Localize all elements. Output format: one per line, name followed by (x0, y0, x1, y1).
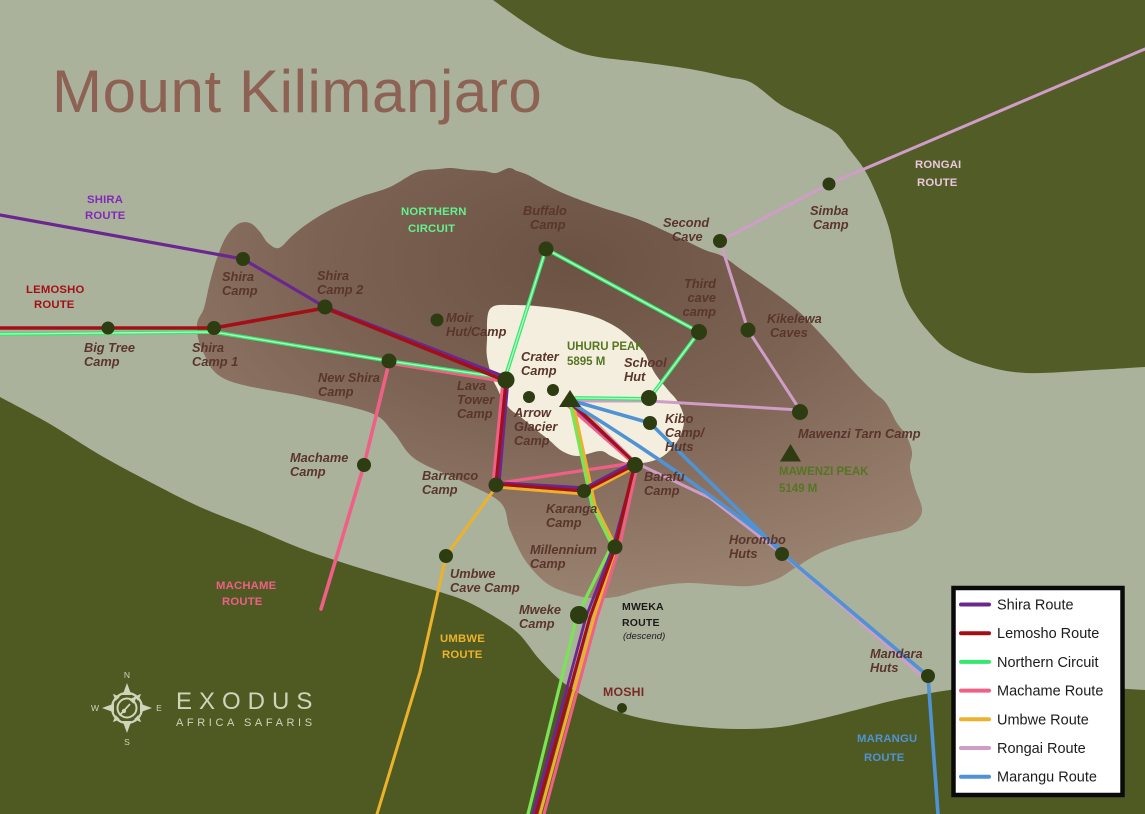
svg-text:(descend): (descend) (623, 631, 665, 642)
svg-text:Thirdcavecamp: Thirdcavecamp (683, 276, 718, 319)
svg-text:UMBWE: UMBWE (440, 633, 485, 645)
svg-text:MACHAME: MACHAME (216, 580, 277, 592)
svg-text:ROUTE: ROUTE (34, 299, 75, 311)
svg-text:CIRCUIT: CIRCUIT (408, 223, 455, 235)
svg-text:SHIRA: SHIRA (87, 194, 123, 206)
svg-text:UHURU PEAK: UHURU PEAK (567, 341, 644, 353)
svg-text:Lemosho Route: Lemosho Route (997, 626, 1099, 642)
svg-text:MOSHI: MOSHI (603, 685, 644, 699)
svg-text:SimbaCamp: SimbaCamp (810, 203, 849, 232)
svg-text:Machame Route: Machame Route (997, 684, 1103, 700)
svg-text:Rongai Route: Rongai Route (997, 741, 1086, 757)
svg-text:S: S (124, 737, 130, 747)
svg-text:5895 M: 5895 M (567, 356, 605, 368)
svg-text:Umbwe Route: Umbwe Route (997, 712, 1089, 728)
svg-text:ShiraCamp: ShiraCamp (222, 269, 258, 298)
svg-text:BuffaloCamp: BuffaloCamp (523, 203, 567, 232)
svg-text:NORTHERN: NORTHERN (401, 206, 467, 218)
svg-text:Mount Kilimanjaro: Mount Kilimanjaro (52, 58, 542, 125)
svg-text:ROUTE: ROUTE (864, 752, 905, 764)
svg-text:E: E (156, 703, 162, 713)
svg-text:EXODUS: EXODUS (176, 688, 319, 715)
svg-text:ROUTE: ROUTE (85, 210, 126, 222)
svg-text:ROUTE: ROUTE (622, 617, 660, 629)
svg-text:N: N (124, 670, 130, 680)
svg-text:BarafuCamp: BarafuCamp (644, 469, 685, 498)
svg-text:MARANGU: MARANGU (857, 733, 917, 745)
svg-text:5149 M: 5149 M (779, 483, 817, 495)
svg-text:ROUTE: ROUTE (917, 177, 958, 189)
svg-text:MAWENZI PEAK: MAWENZI PEAK (779, 466, 869, 478)
svg-text:MWEKA: MWEKA (622, 601, 664, 613)
svg-text:LEMOSHO: LEMOSHO (26, 284, 85, 296)
svg-text:AFRICA SAFARIS: AFRICA SAFARIS (176, 717, 316, 729)
svg-text:Mawenzi Tarn Camp: Mawenzi Tarn Camp (798, 426, 921, 441)
svg-text:RONGAI: RONGAI (915, 159, 961, 171)
svg-text:CraterCamp: CraterCamp (521, 349, 560, 378)
svg-text:Shira Route: Shira Route (997, 598, 1074, 614)
svg-text:W: W (91, 703, 99, 713)
svg-text:Northern Circuit: Northern Circuit (997, 655, 1099, 671)
svg-text:ROUTE: ROUTE (222, 596, 263, 608)
svg-text:Marangu Route: Marangu Route (997, 770, 1097, 786)
svg-text:ROUTE: ROUTE (442, 649, 483, 661)
